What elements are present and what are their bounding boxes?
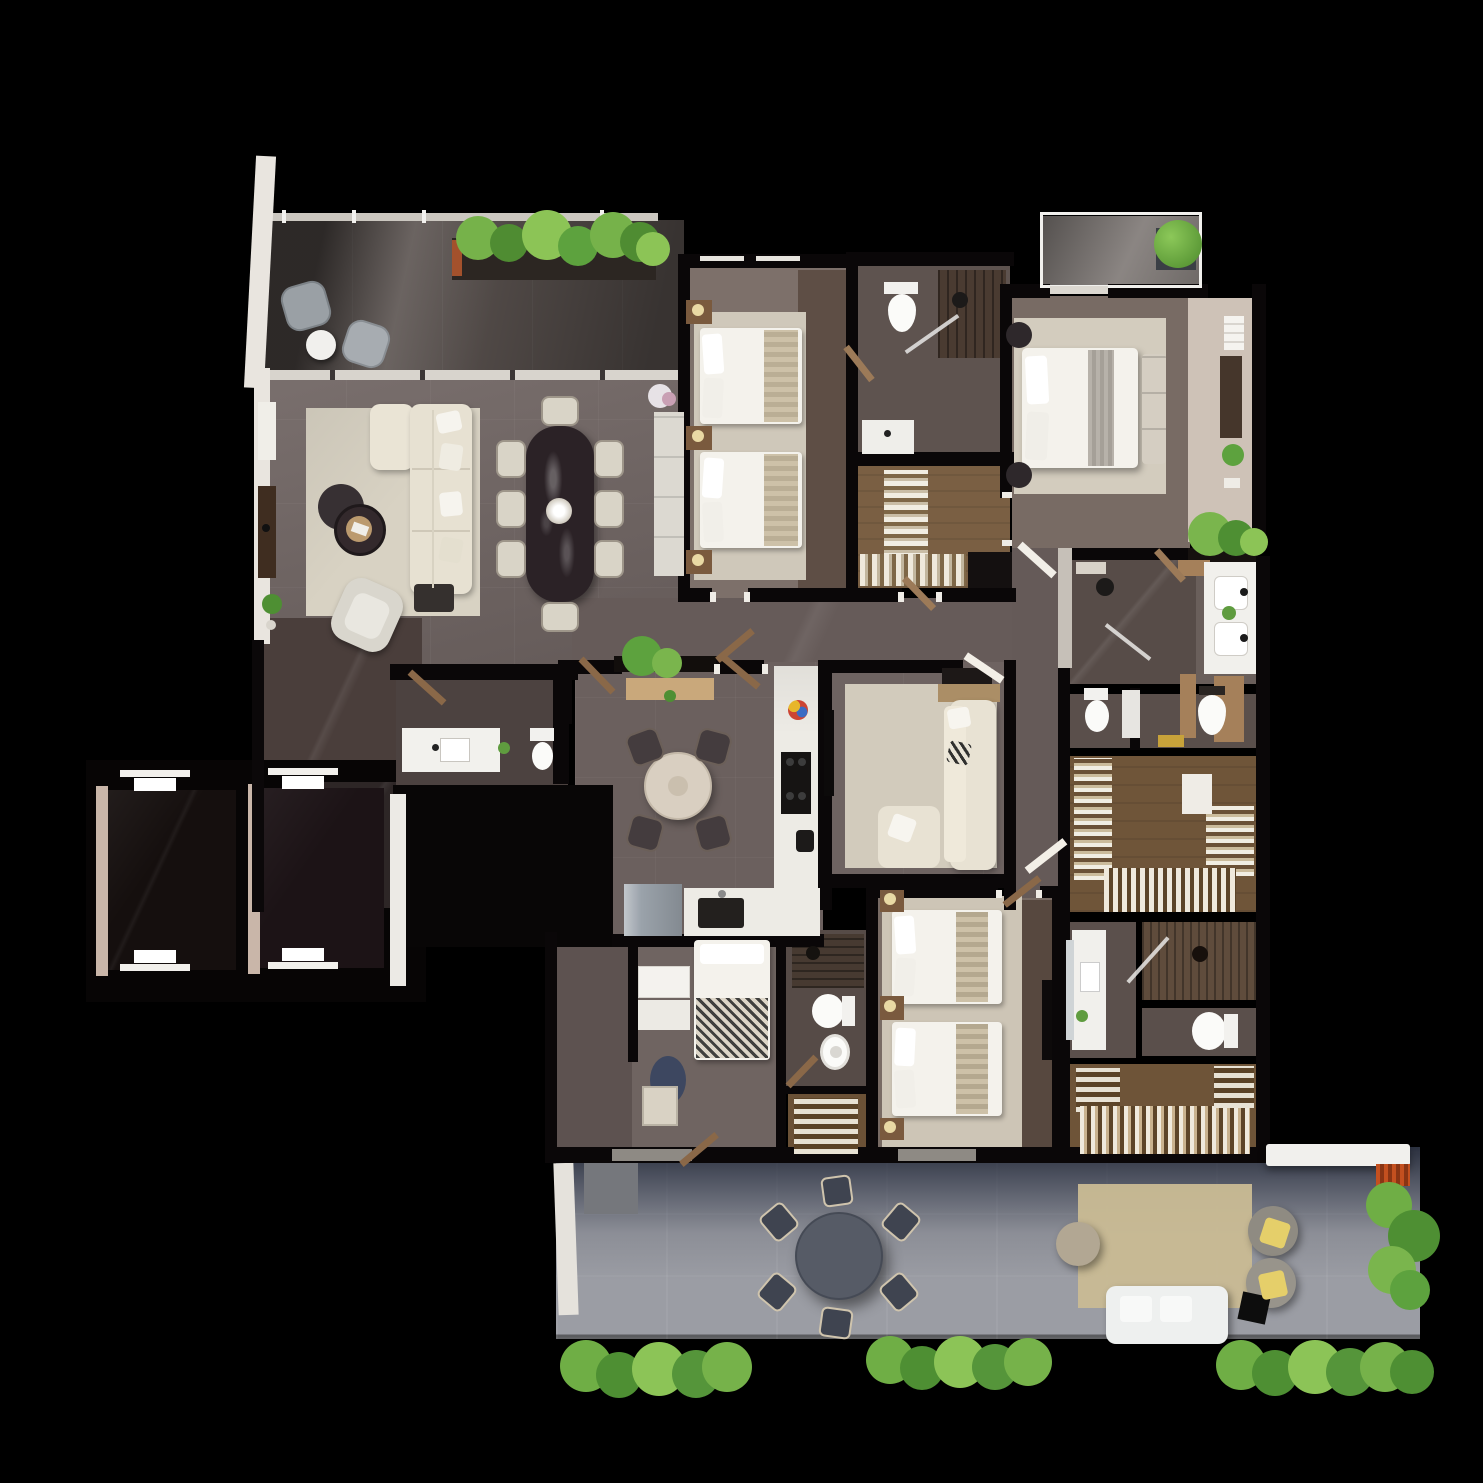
lounge-sofa-cushion-2 — [1160, 1296, 1192, 1322]
dining-chair-r3 — [594, 540, 624, 578]
vanity2-plant — [1076, 1010, 1088, 1022]
sofa-pillow-3 — [439, 491, 463, 517]
bath1-shower-floor — [938, 270, 1006, 358]
bath1-shower-head — [952, 292, 968, 308]
master-right-wall — [1252, 284, 1266, 548]
elevator-2-door-bottom — [282, 948, 324, 961]
bedroom1-bed-1-pillow-a — [702, 333, 725, 374]
closet1-divider-wall — [846, 452, 1014, 466]
dining-chair-l2 — [496, 490, 526, 528]
wc1-gold-shelf — [1158, 735, 1184, 747]
closet2-rack-bottom — [1080, 1106, 1250, 1154]
bedroom1-lamp-2 — [692, 430, 704, 442]
bedroom1-window-2 — [756, 256, 800, 261]
master-bottom-wall — [1060, 548, 1190, 560]
master-towels — [1224, 316, 1244, 350]
bedroom1-bottom-wall-a — [678, 588, 712, 602]
entry-door — [258, 486, 276, 578]
closet1-bottom-wall-a — [846, 588, 902, 602]
elevator-1-door-bottom — [134, 950, 176, 963]
railing-post-2 — [352, 210, 356, 223]
dining-centerpiece — [546, 498, 572, 524]
master-pillow-2 — [1025, 411, 1049, 460]
elevator-2-door-bottom-track — [268, 962, 338, 969]
window-mullion-1 — [330, 370, 335, 380]
sink-faucet — [718, 890, 726, 898]
bath1-top-wall — [846, 252, 1014, 266]
hedge-a-5 — [702, 1342, 752, 1392]
burner-4 — [798, 792, 806, 800]
master-door-jamb-1 — [1002, 492, 1012, 498]
bedroom3-lamp-3 — [884, 1121, 896, 1133]
bedroom1-door-jamb-2 — [744, 592, 750, 602]
sofa-cushion-divider-2 — [412, 530, 470, 532]
closet1-clothes-rack-bottom — [860, 554, 966, 586]
mbath-left-wall-light — [1058, 548, 1072, 668]
bedroom3-bed-2-runner — [956, 1024, 988, 1114]
mbath-faucet-2 — [1240, 634, 1248, 642]
sideboard — [654, 412, 684, 576]
bedroom3-tv — [1042, 980, 1052, 1060]
counter-flower-bouquet — [788, 700, 808, 720]
kitchen-entry-jamb-2 — [762, 664, 768, 674]
master-balcony-door-frame — [1050, 286, 1108, 294]
powder-toilet-tank — [530, 728, 554, 741]
family-pillow-1 — [946, 706, 971, 730]
entry-plant — [262, 594, 282, 614]
elevator-shaft-2-floor — [256, 788, 384, 968]
master-console-plant — [1222, 444, 1244, 466]
lounge-sofa-cushion-1 — [1120, 1296, 1152, 1322]
powder-toilet-bowl — [532, 742, 553, 770]
dining-chair-r2 — [594, 490, 624, 528]
terrace-side-table — [306, 330, 336, 360]
powder-plant — [498, 742, 510, 754]
maid-bed-pillow — [700, 944, 764, 964]
powder-faucet — [432, 744, 439, 751]
family-tv — [824, 710, 834, 796]
master-console — [1220, 356, 1242, 438]
vanity2-sink — [1080, 962, 1100, 992]
bedroom1-right-wall — [846, 252, 858, 598]
utility-block — [393, 785, 613, 947]
closet1-door-jamb-2 — [936, 592, 942, 602]
terrace-chair-n — [820, 1174, 854, 1208]
elevator-2-door-top-track — [268, 768, 338, 775]
master-side-table-1 — [1006, 322, 1032, 348]
mbath-faucet-1 — [1240, 588, 1248, 596]
mcloset-dresser — [1182, 774, 1212, 814]
hedge-c-6 — [1390, 1350, 1434, 1394]
master-pillow-1 — [1025, 355, 1049, 404]
bedroom3-door-jamb-1 — [996, 890, 1002, 898]
window-mullion-2 — [420, 370, 425, 380]
bedroom1-bed-2-pillow-b — [702, 502, 724, 543]
burner-3 — [786, 792, 794, 800]
bedroom1-bottom-wall-b — [748, 588, 858, 602]
elevator-2-door-top — [282, 776, 324, 789]
entry-door-handle — [262, 524, 270, 532]
maid-wall-left — [628, 932, 638, 1062]
shelf-plant-small — [664, 690, 676, 702]
master-bench — [1142, 354, 1166, 464]
mcloset-rack-left — [1074, 758, 1112, 880]
dining-chair-l1 — [496, 440, 526, 478]
maid-cabinet-2 — [638, 1000, 690, 1030]
bedroom1-bed-1-pillow-b — [702, 378, 724, 419]
maidbath-toilet-tank — [842, 996, 855, 1026]
maidbath-wall-left — [776, 926, 786, 1160]
bedroom3-right-wall — [1052, 892, 1064, 1158]
bedroom1-lamp-3 — [692, 554, 704, 566]
terrace-window-wall — [262, 370, 684, 380]
closet1-door-jamb-1 — [898, 592, 904, 602]
vanity2-mirror — [1066, 940, 1074, 1040]
fridge — [624, 884, 682, 936]
bedroom1-lamp-1 — [692, 304, 704, 316]
bath1-toilet-tank — [884, 282, 918, 294]
shower2-head — [1192, 946, 1208, 962]
elevator-shaft-1-floor — [104, 790, 236, 970]
breakfast-table-center — [668, 776, 688, 796]
maid-shelf — [642, 1086, 678, 1126]
bedroom1-window-1 — [700, 256, 744, 261]
shelf-plant-2 — [652, 648, 682, 678]
terrace-dining-table — [795, 1212, 883, 1300]
bedroom3-bed-2-pillow-b — [894, 1069, 917, 1108]
dining-chair-r1 — [594, 440, 624, 478]
maid-cabinet-1 — [638, 966, 690, 998]
divider-plant-3 — [1240, 528, 1268, 556]
closet2-rack-right — [1214, 1066, 1254, 1108]
entry-console — [258, 402, 276, 460]
wc2-toilet-tank — [1084, 688, 1108, 700]
bedroom1-bed-2-pillow-a — [702, 457, 725, 498]
maid-bed-blanket — [696, 998, 768, 1058]
elevator-1-door-top — [134, 778, 176, 791]
bedroom3-lamp-1 — [884, 893, 896, 905]
dining-chair-l3 — [496, 540, 526, 578]
wc2-door-panel — [1122, 690, 1140, 738]
family-right-wall — [1004, 660, 1016, 910]
master-door-jamb-2 — [1002, 540, 1012, 546]
sofa-ottoman — [414, 584, 454, 612]
kitchen-entry-jamb-1 — [714, 664, 720, 674]
balcony-plant — [1154, 220, 1202, 268]
bedroom3-bed-1-pillow-a — [894, 915, 917, 954]
mbath-right-wall — [1256, 556, 1270, 1162]
bedroom3-bed-1-pillow-b — [894, 957, 917, 996]
hedge-b-5 — [1004, 1338, 1052, 1386]
sofa-pillow-2 — [438, 443, 463, 472]
wc3-toilet-bowl — [1192, 1012, 1226, 1050]
maid-shoe-rack — [794, 1098, 858, 1154]
window-mullion-4 — [600, 370, 605, 380]
family-sofa-cushions — [944, 706, 966, 862]
railing-post-1 — [282, 210, 286, 223]
elevator-1-door-bottom-track — [120, 964, 190, 971]
mbath-vanity-plant — [1222, 606, 1236, 620]
sofa-armline — [432, 410, 434, 588]
sofa-chaise — [370, 404, 414, 470]
wc3-toilet-tank — [1224, 1014, 1238, 1048]
terrace-chair-s — [818, 1306, 854, 1340]
railing-post-3 — [422, 210, 426, 223]
bedroom1-door-jamb-1 — [710, 592, 716, 602]
bath1-vanity-faucet — [884, 430, 891, 437]
elevator-shaft-1-side-wall — [96, 786, 108, 976]
powder-sink — [440, 738, 470, 762]
entry-left-wall-lower — [252, 640, 264, 912]
dining-chair-bottom — [541, 602, 579, 632]
mbath-niche-shelf — [1076, 562, 1106, 574]
bedroom1-bed-2-runner — [764, 454, 798, 546]
lobby-wall-panel — [390, 794, 406, 986]
bedroom3-lamp-2 — [884, 1000, 896, 1012]
sofa-pillow-4 — [438, 536, 464, 563]
wc1-wood-side — [1180, 674, 1196, 738]
lounge-chair-2-pillow — [1258, 1270, 1289, 1301]
wc2-toilet-bowl — [1085, 700, 1109, 732]
floor-plan-scene — [0, 0, 1483, 1483]
burner-2 — [798, 758, 806, 766]
mcloset-shoe-shelf — [1104, 868, 1236, 912]
bedroom3-door-jamb-2 — [1036, 890, 1042, 898]
terrace-bench — [1266, 1144, 1410, 1166]
corridor-bl-left-wall — [545, 932, 557, 1162]
floor-plan-canvas — [0, 0, 1483, 1483]
maidbath-closet-wall — [786, 1086, 872, 1094]
maidbath-toilet-bowl — [812, 994, 844, 1028]
bath1-vanity — [862, 420, 914, 454]
master-side-table-2 — [1006, 462, 1032, 488]
bedroom3-bed-2-pillow-a — [894, 1028, 916, 1067]
closet1-clothes-rack-left — [884, 470, 928, 558]
mbath-shower-head — [1096, 578, 1114, 596]
maidbath-bidet-center — [830, 1046, 842, 1058]
terrace-tree-4 — [1390, 1270, 1430, 1310]
planter-plant-7 — [636, 232, 670, 266]
sideboard-flowers-accent — [662, 392, 676, 406]
closet1-bottom-wall-b — [940, 588, 1016, 602]
burner-1 — [786, 758, 794, 766]
terrace-sliding-door-2 — [898, 1149, 976, 1161]
counter-espresso-machine — [796, 830, 814, 852]
elevator-1-door-top-track — [120, 770, 190, 777]
window-mullion-3 — [510, 370, 515, 380]
entry-decor-vase — [266, 620, 276, 630]
dining-chair-top — [541, 396, 579, 426]
bedroom3-left-wall — [866, 892, 878, 1158]
bedroom1-bed-1-runner — [764, 330, 798, 422]
mcloset-rack-right — [1206, 806, 1254, 876]
bedroom3-bed-1-runner — [956, 912, 988, 1002]
lounge-pouf — [1056, 1222, 1100, 1266]
kitchen-sink — [698, 898, 744, 928]
master-bed-runner — [1088, 350, 1114, 466]
maidbath-shower-head — [806, 946, 820, 960]
master-console-decor — [1224, 478, 1240, 488]
closet1-black-unit — [968, 552, 1012, 588]
family-pillow-2 — [946, 740, 972, 766]
wc1-toilet-hinge — [1199, 686, 1225, 695]
